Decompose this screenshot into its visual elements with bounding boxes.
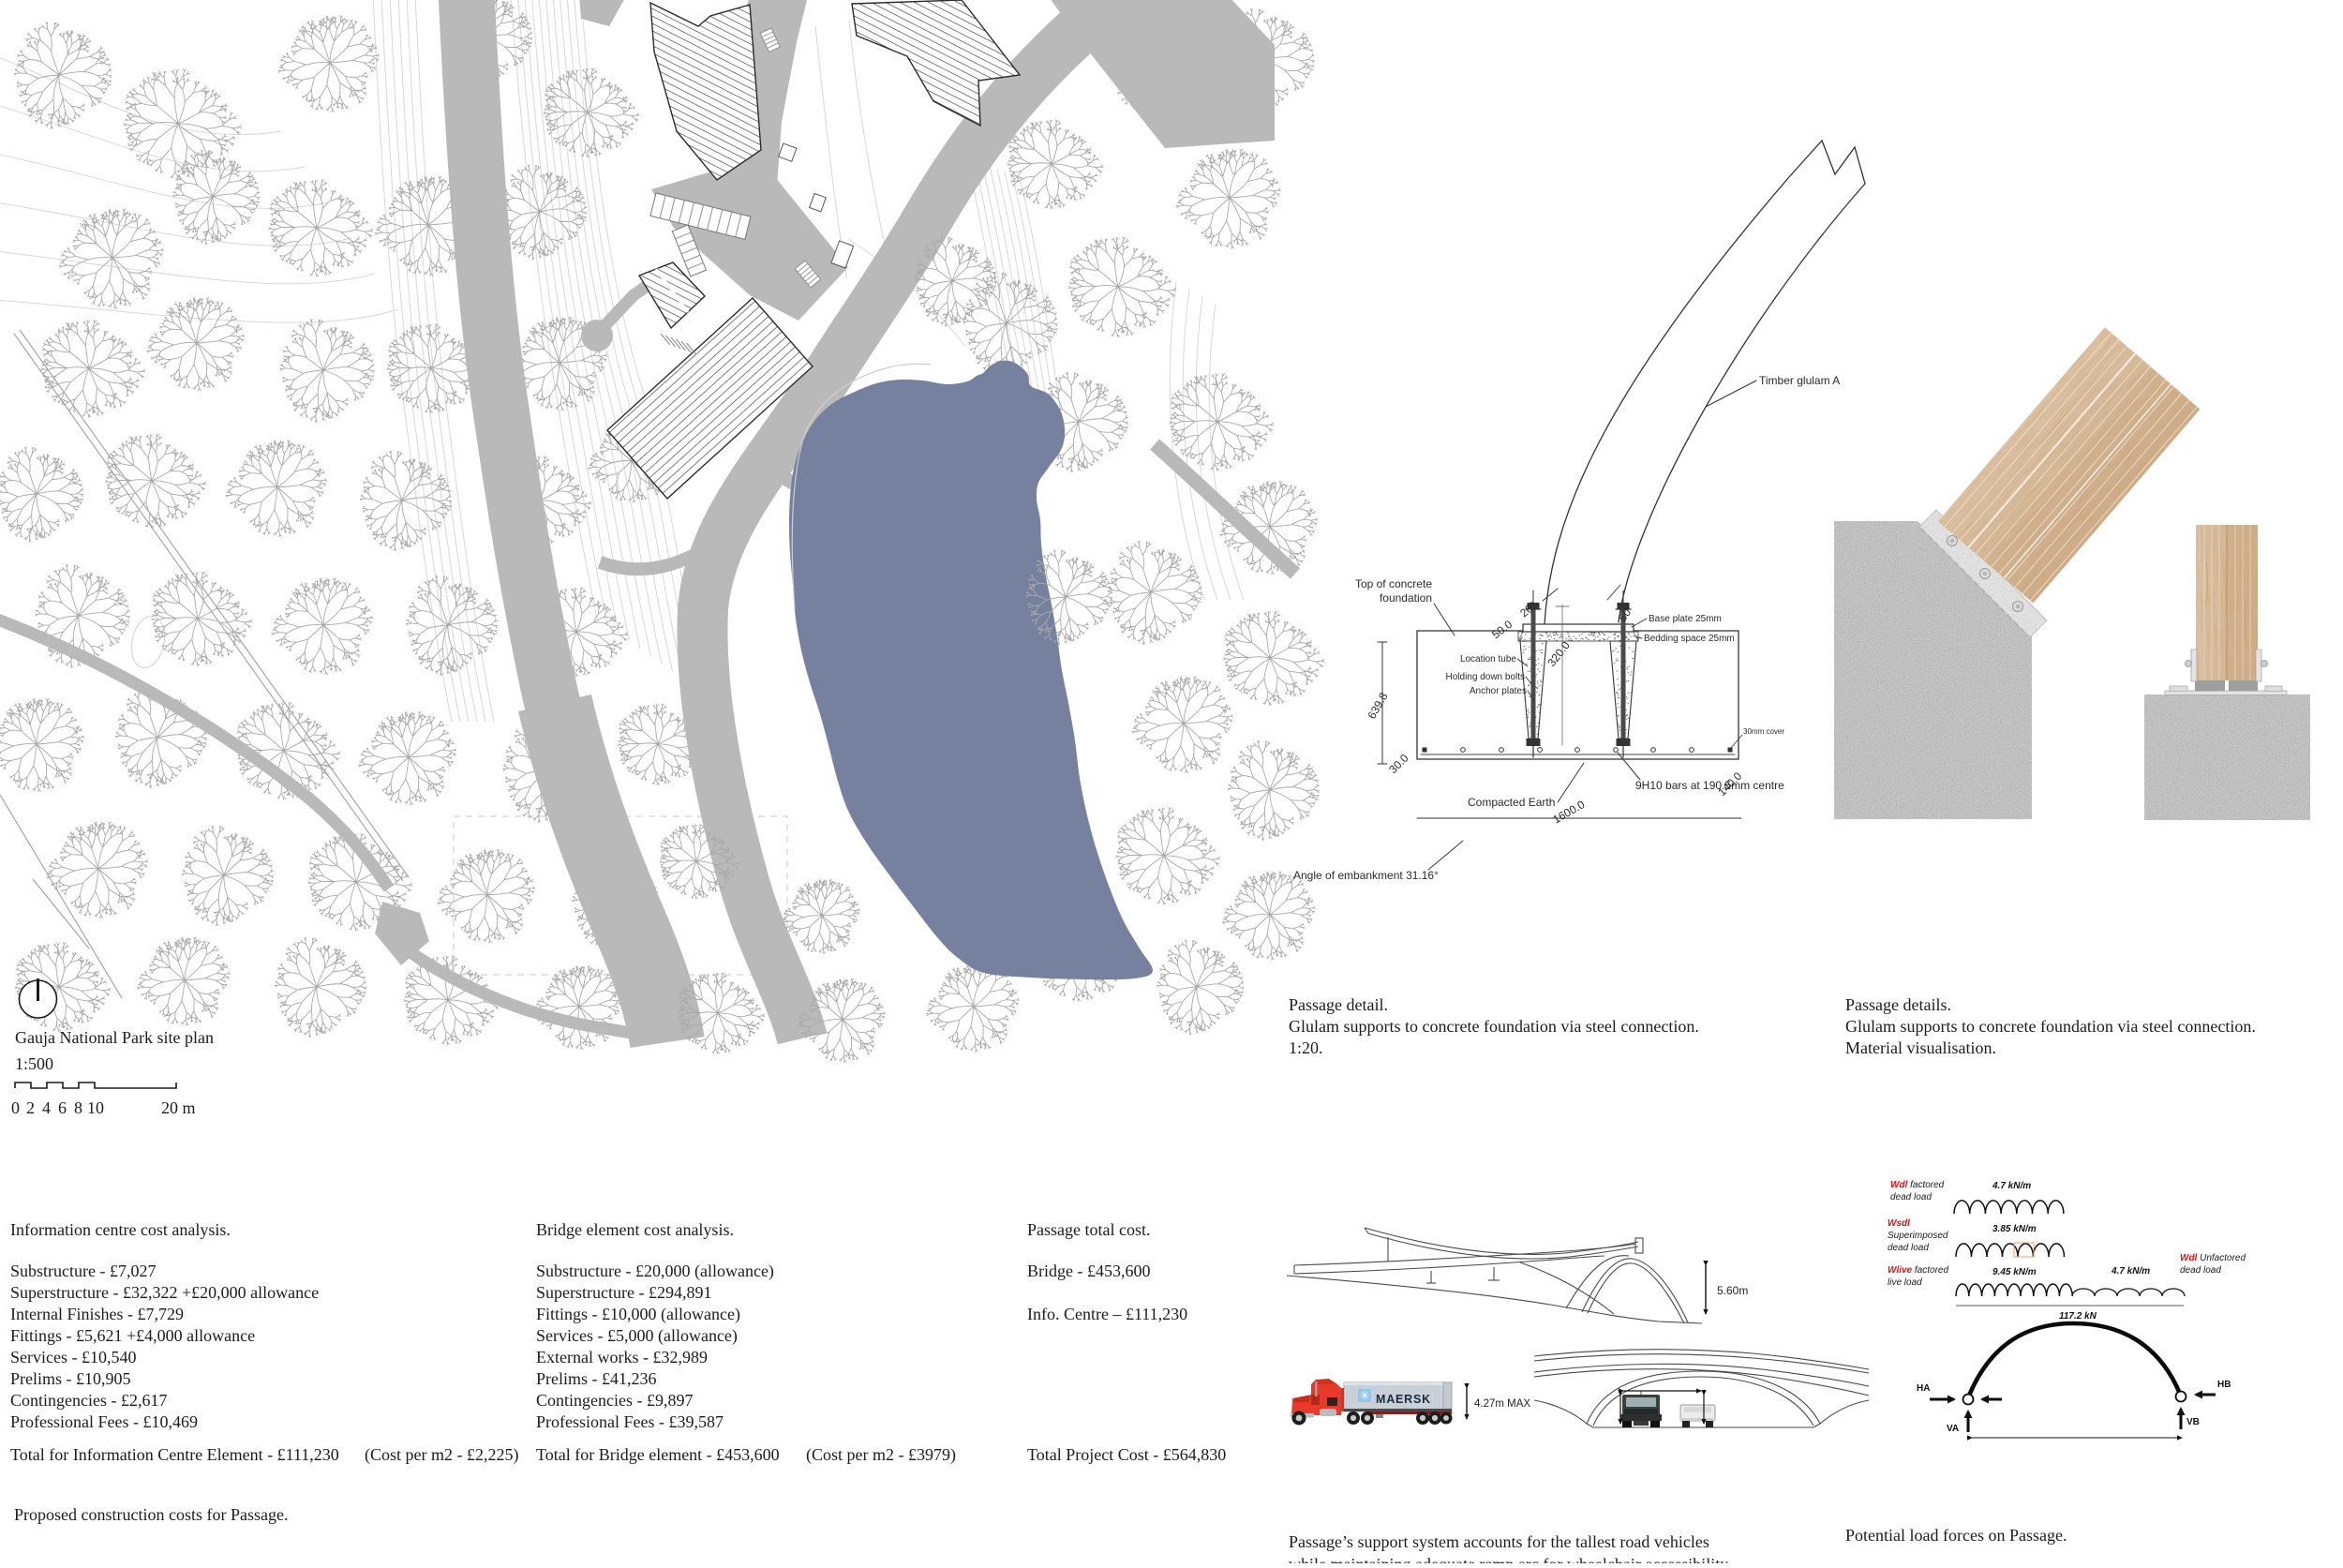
svg-text:Compacted Earth: Compacted Earth (1468, 796, 1555, 809)
svg-text:Glulam supports to concrete fo: Glulam supports to concrete foundation v… (1845, 1017, 2256, 1036)
svg-text:dead load: dead load (2180, 1265, 2221, 1276)
svg-text:Services - £5,000 (allowance): Services - £5,000 (allowance) (536, 1326, 738, 1346)
svg-text:30mm cover: 30mm cover (1743, 727, 1784, 736)
svg-text:1:500: 1:500 (15, 1054, 53, 1073)
svg-text:6: 6 (58, 1098, 67, 1117)
svg-text:Substructure - £20,000 (allowa: Substructure - £20,000 (allowance) (536, 1262, 774, 1281)
svg-text:4.7 kN/m: 4.7 kN/m (2111, 1266, 2150, 1277)
svg-text:Contingencies - £9,897: Contingencies - £9,897 (536, 1391, 693, 1410)
svg-text:Info. Centre – £111,230: Info. Centre – £111,230 (1027, 1305, 1187, 1323)
svg-text:1:20.: 1:20. (1289, 1038, 1323, 1057)
svg-text:Information centre cost analys: Information centre cost analysis. (10, 1220, 231, 1239)
svg-text:Timber glulam A: Timber glulam A (1759, 374, 1840, 387)
svg-text:4.7 kN/m: 4.7 kN/m (1992, 1181, 2031, 1191)
svg-text:MAERSK: MAERSK (1376, 1393, 1431, 1406)
svg-text:Base plate 25mm: Base plate 25mm (1649, 614, 1722, 624)
svg-text:Potential load forces on Passa: Potential load forces on Passage. (1845, 1526, 2067, 1545)
svg-text:(Cost per m2 - £2,225): (Cost per m2 - £2,225) (365, 1445, 518, 1465)
svg-text:2: 2 (26, 1098, 35, 1117)
svg-text:✳: ✳ (1360, 1389, 1369, 1402)
svg-text:Passage detail.: Passage detail. (1289, 995, 1388, 1014)
svg-text:Anchor plates: Anchor plates (1470, 686, 1527, 696)
svg-text:Prelims - £41,236: Prelims - £41,236 (536, 1369, 657, 1388)
svg-text:Angle of embankment 31.16°: Angle of embankment 31.16° (1293, 869, 1439, 882)
svg-text:Fittings - £5,621 +£4,000 allo: Fittings - £5,621 +£4,000 allowance (10, 1326, 255, 1345)
svg-text:HA: HA (1917, 1383, 1930, 1394)
svg-text:10: 10 (87, 1098, 104, 1117)
svg-text:Wsdl: Wsdl (1888, 1218, 1910, 1229)
svg-text:Material visualisation.: Material visualisation. (1845, 1038, 1996, 1057)
svg-text:Internal Finishes - £7,729: Internal Finishes - £7,729 (10, 1305, 184, 1323)
svg-text:Total for Information Centre E: Total for Information Centre Element - £… (10, 1445, 339, 1464)
svg-text:Total for Bridge element - £45: Total for Bridge element - £453,600 (536, 1445, 780, 1464)
svg-text:0: 0 (11, 1098, 20, 1117)
svg-text:9.45 kN/m: 9.45 kN/m (1992, 1267, 2037, 1277)
svg-text:Total Project Cost - £564,830: Total Project Cost - £564,830 (1027, 1445, 1226, 1464)
svg-text:Wdl factored: Wdl factored (1890, 1180, 1945, 1190)
svg-text:Bridge element cost analysis.: Bridge element cost analysis. (536, 1220, 734, 1239)
svg-text:External works - £32,989: External works - £32,989 (536, 1348, 708, 1366)
svg-text:foundation: foundation (1380, 591, 1432, 605)
svg-text:Bridge - £453,600: Bridge - £453,600 (1027, 1262, 1150, 1280)
svg-text:Fittings - £10,000 (allowance): Fittings - £10,000 (allowance) (536, 1305, 740, 1324)
svg-text:Passage’s support system accou: Passage’s support system accounts for th… (1289, 1532, 1709, 1551)
svg-text:Professional Fees - £39,587: Professional Fees - £39,587 (536, 1412, 724, 1431)
svg-text:20 m: 20 m (161, 1098, 196, 1117)
svg-text:Holding down bolts: Holding down bolts (1446, 672, 1526, 682)
svg-text:8: 8 (74, 1098, 82, 1117)
svg-text:Services - £10,540: Services - £10,540 (10, 1348, 136, 1366)
svg-text:Superstructure - £294,891: Superstructure - £294,891 (536, 1283, 711, 1302)
svg-text:Substructure - £7,027: Substructure - £7,027 (10, 1262, 156, 1280)
svg-text:5.60m: 5.60m (1717, 1284, 1748, 1297)
svg-text:Superimposed: Superimposed (1888, 1231, 1948, 1241)
svg-text:Gauja National Park site plan: Gauja National Park site plan (15, 1028, 214, 1047)
svg-text:117.2 kN: 117.2 kN (2059, 1311, 2097, 1322)
svg-text:HB: HB (2217, 1380, 2231, 1390)
svg-text:Proposed construction costs fo: Proposed construction costs for Passage. (14, 1505, 288, 1524)
svg-text:live load: live load (1888, 1277, 1922, 1288)
svg-text:dead load: dead load (1890, 1192, 1932, 1202)
svg-text:(Cost per m2 - £3979): (Cost per m2 - £3979) (806, 1445, 956, 1465)
svg-text:VA: VA (1947, 1424, 1959, 1434)
svg-text:Passage details.: Passage details. (1845, 995, 1951, 1014)
svg-text:VB: VB (2186, 1417, 2200, 1427)
svg-text:dead load: dead load (1888, 1243, 1929, 1253)
svg-text:4: 4 (42, 1098, 51, 1117)
svg-text:Superstructure - £32,322 +£20,: Superstructure - £32,322 +£20,000 allowa… (10, 1283, 319, 1302)
svg-text:Wlive factored: Wlive factored (1888, 1265, 1948, 1276)
svg-text:Prelims - £10,905: Prelims - £10,905 (10, 1369, 131, 1388)
svg-text:while maintaining adequate ram: while maintaining adequate ramp arc for … (1289, 1555, 1732, 1563)
svg-text:3.85 kN/m: 3.85 kN/m (1992, 1224, 2037, 1234)
svg-text:Contingencies - £2,617: Contingencies - £2,617 (10, 1391, 167, 1410)
svg-text:4.27m MAX: 4.27m MAX (1474, 1398, 1530, 1410)
svg-text:Bedding space 25mm: Bedding space 25mm (1644, 634, 1735, 644)
svg-text:Professional Fees - £10,469: Professional Fees - £10,469 (10, 1412, 198, 1431)
svg-text:Passage total cost.: Passage total cost. (1027, 1220, 1150, 1239)
svg-text:9H10 bars at 190.5mm centre: 9H10 bars at 190.5mm centre (1635, 779, 1784, 792)
svg-text:Glulam supports to concrete fo: Glulam supports to concrete foundation v… (1289, 1017, 1699, 1036)
svg-text:Location tube: Location tube (1460, 654, 1516, 665)
svg-text:Top of concrete: Top of concrete (1355, 577, 1432, 590)
svg-text:Wdl Unfactored: Wdl Unfactored (2180, 1253, 2246, 1263)
